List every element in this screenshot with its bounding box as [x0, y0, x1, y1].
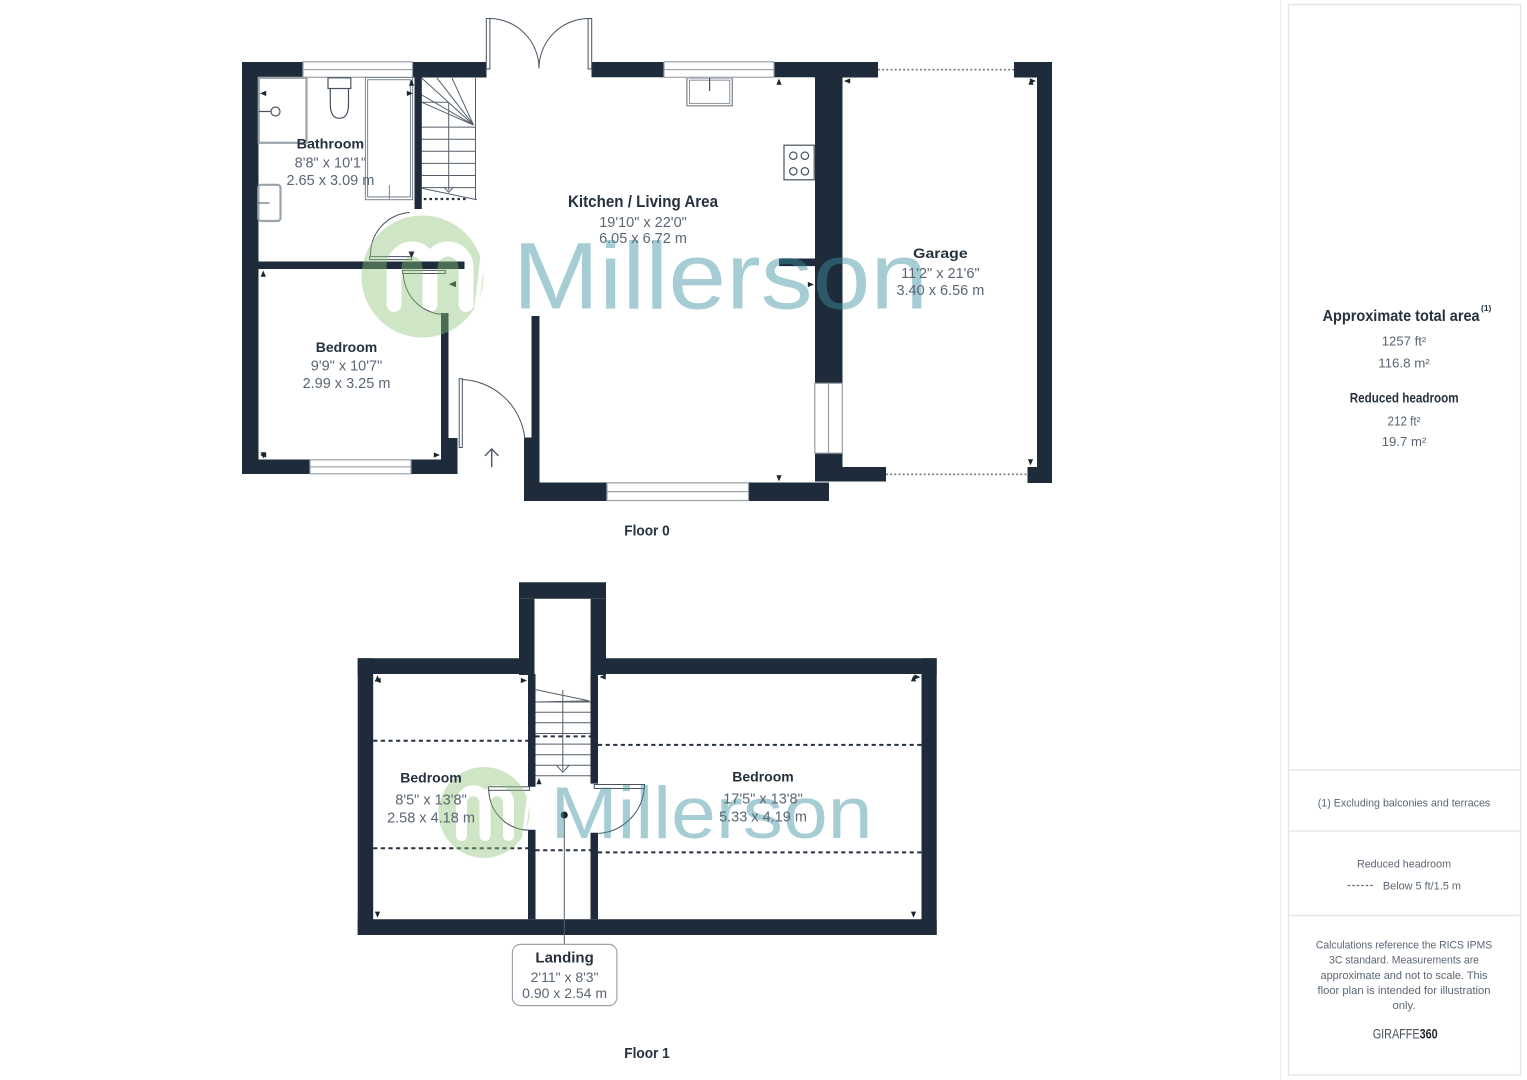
svg-text:Floor 0: Floor 0 [624, 523, 670, 540]
svg-text:6.05 x 6.72 m: 6.05 x 6.72 m [599, 231, 687, 247]
svg-text:(1): (1) [1481, 303, 1492, 313]
svg-text:(1) Excluding balconies and te: (1) Excluding balconies and terraces [1318, 797, 1491, 809]
svg-text:Millerson: Millerson [513, 223, 929, 329]
svg-text:212 ft²: 212 ft² [1388, 414, 1422, 429]
svg-text:5.33 x 4.19 m: 5.33 x 4.19 m [719, 810, 807, 826]
svg-text:Reduced headroom: Reduced headroom [1350, 391, 1459, 406]
svg-text:Millerson: Millerson [551, 773, 873, 854]
svg-text:Bathroom: Bathroom [297, 136, 365, 152]
svg-text:2.99 x 3.25 m: 2.99 x 3.25 m [303, 376, 391, 392]
svg-text:3.40 x 6.56 m: 3.40 x 6.56 m [896, 283, 984, 299]
svg-text:116.8 m²: 116.8 m² [1378, 356, 1430, 371]
svg-text:1257 ft²: 1257 ft² [1382, 334, 1427, 349]
svg-text:19'10" x 22'0": 19'10" x 22'0" [599, 215, 687, 231]
svg-text:11'2" x 21'6": 11'2" x 21'6" [901, 266, 979, 282]
svg-text:9'9" x 10'7": 9'9" x 10'7" [311, 359, 382, 375]
svg-text:8'5" x 13'8": 8'5" x 13'8" [395, 793, 466, 809]
svg-text:2.58 x 4.18 m: 2.58 x 4.18 m [387, 811, 475, 827]
svg-text:Below 5 ft/1.5 m: Below 5 ft/1.5 m [1383, 881, 1461, 893]
svg-text:2.65 x 3.09 m: 2.65 x 3.09 m [286, 173, 374, 189]
svg-text:Landing: Landing [535, 950, 593, 967]
svg-text:Reduced headroom: Reduced headroom [1357, 859, 1451, 871]
svg-text:0.90 x 2.54 m: 0.90 x 2.54 m [522, 985, 607, 1001]
svg-text:2'11" x 8'3": 2'11" x 8'3" [531, 969, 599, 985]
svg-text:Garage: Garage [913, 245, 968, 261]
svg-text:Kitchen / Living Area: Kitchen / Living Area [568, 192, 718, 211]
svg-text:3C standard. Measurements are: 3C standard. Measurements are [1329, 955, 1479, 967]
svg-text:approximate and not to scale.: approximate and not to scale. This [1321, 970, 1488, 982]
svg-text:Calculations reference the RIC: Calculations reference the RICS IPMS [1316, 940, 1492, 952]
svg-text:Floor 1: Floor 1 [624, 1045, 670, 1062]
svg-text:floor plan is intended for ill: floor plan is intended for illustration [1318, 985, 1491, 997]
svg-text:19.7 m²: 19.7 m² [1382, 434, 1427, 449]
svg-text:Bedroom: Bedroom [316, 339, 377, 355]
svg-text:8'8" x 10'1": 8'8" x 10'1" [295, 156, 366, 172]
svg-text:Bedroom: Bedroom [400, 770, 461, 786]
svg-text:17'5" x 13'8": 17'5" x 13'8" [723, 792, 803, 808]
svg-text:GIRAFFE360: GIRAFFE360 [1373, 1027, 1438, 1042]
svg-text:Approximate total area: Approximate total area [1323, 308, 1480, 325]
svg-text:Bedroom: Bedroom [732, 769, 793, 785]
svg-text:only.: only. [1393, 1000, 1416, 1012]
